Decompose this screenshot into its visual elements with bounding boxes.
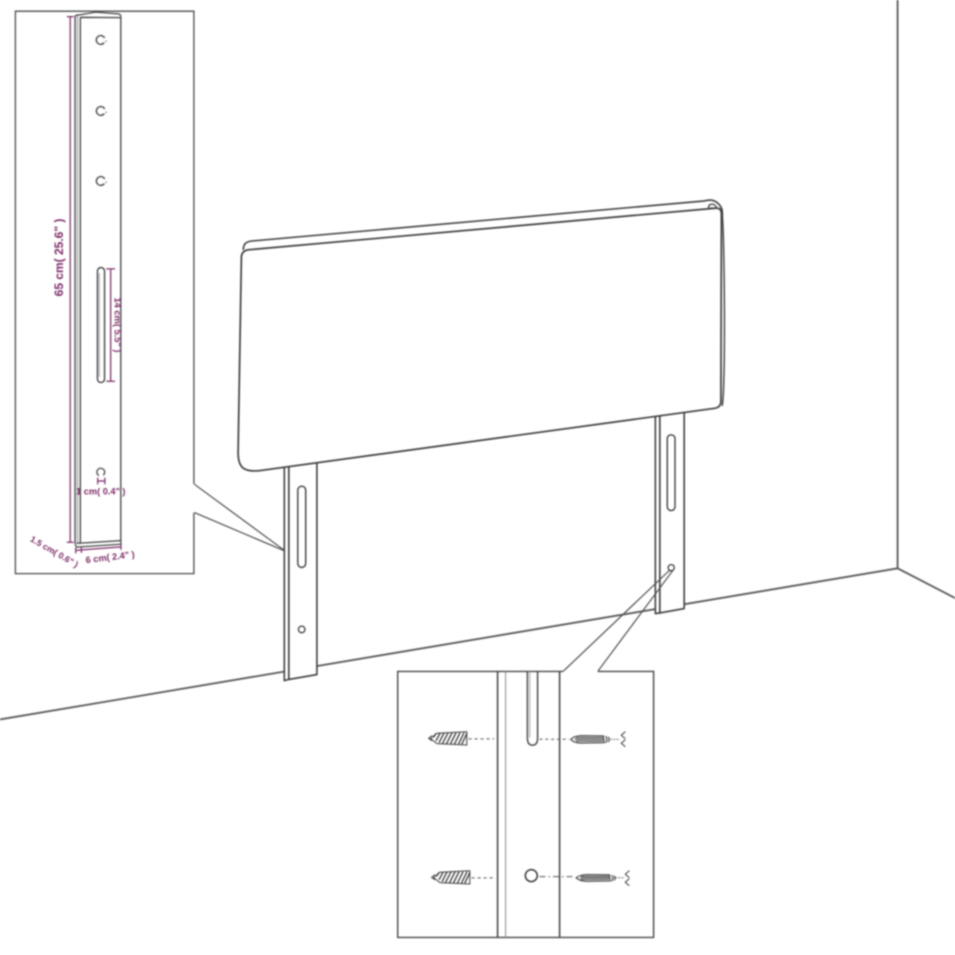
svg-text:14 cm( 5.5" ): 14 cm( 5.5" ) xyxy=(113,297,123,352)
svg-text:65 cm( 25.6" ): 65 cm( 25.6" ) xyxy=(52,219,66,297)
svg-text:1 cm( 0.4" ): 1 cm( 0.4" ) xyxy=(76,487,125,497)
